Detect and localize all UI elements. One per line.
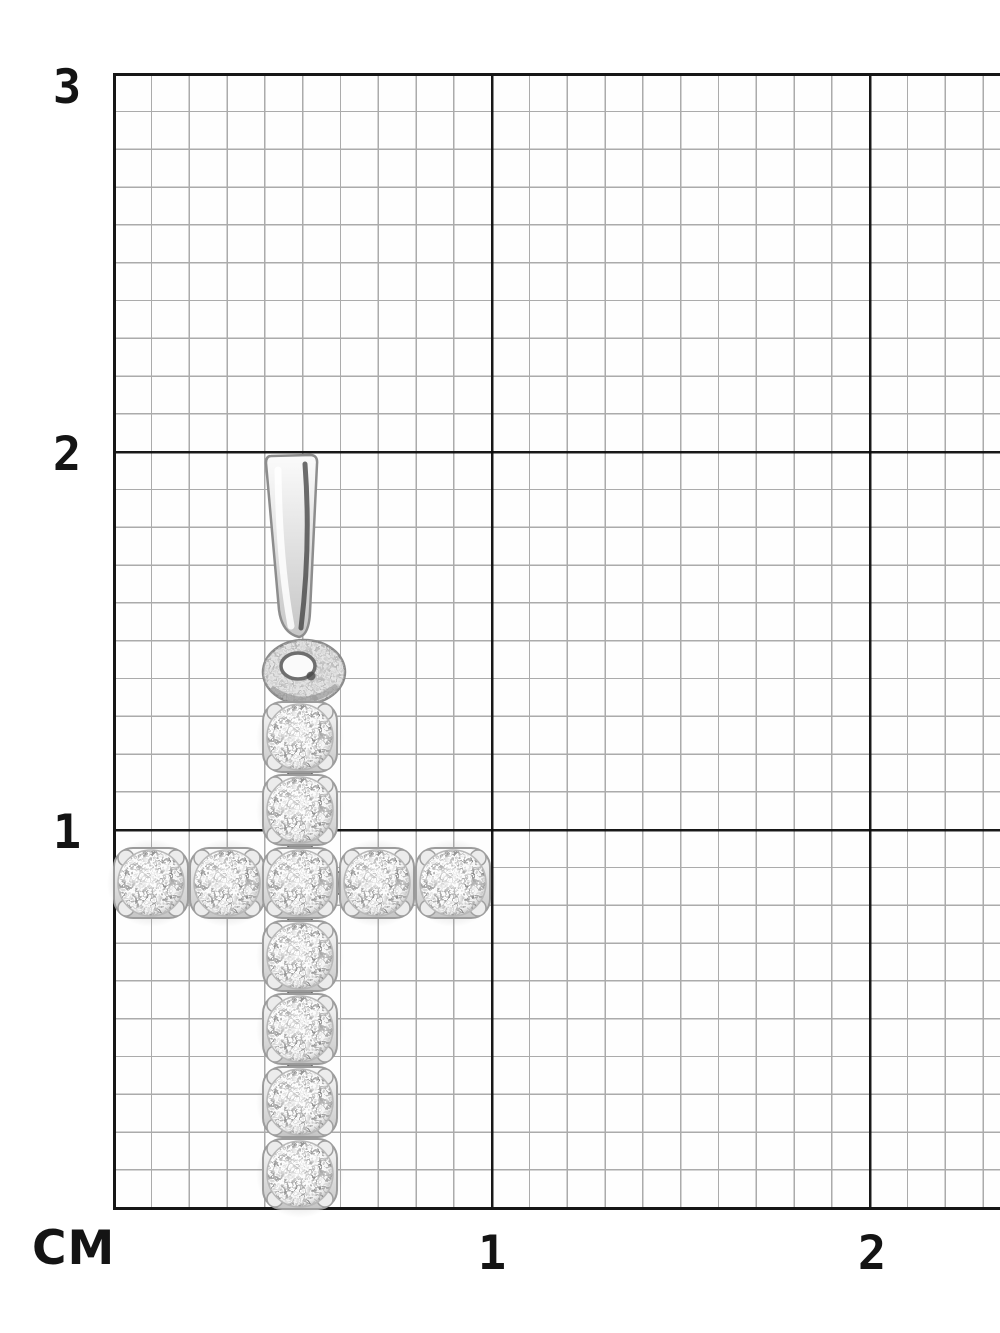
vertical-stones <box>256 693 344 1218</box>
diamond-cross-pendant <box>0 0 1000 1333</box>
pendant-bail <box>263 455 345 704</box>
product-photo: 3 2 1 1 2 СМ <box>0 0 1000 1333</box>
horizontal-stones <box>107 839 497 927</box>
